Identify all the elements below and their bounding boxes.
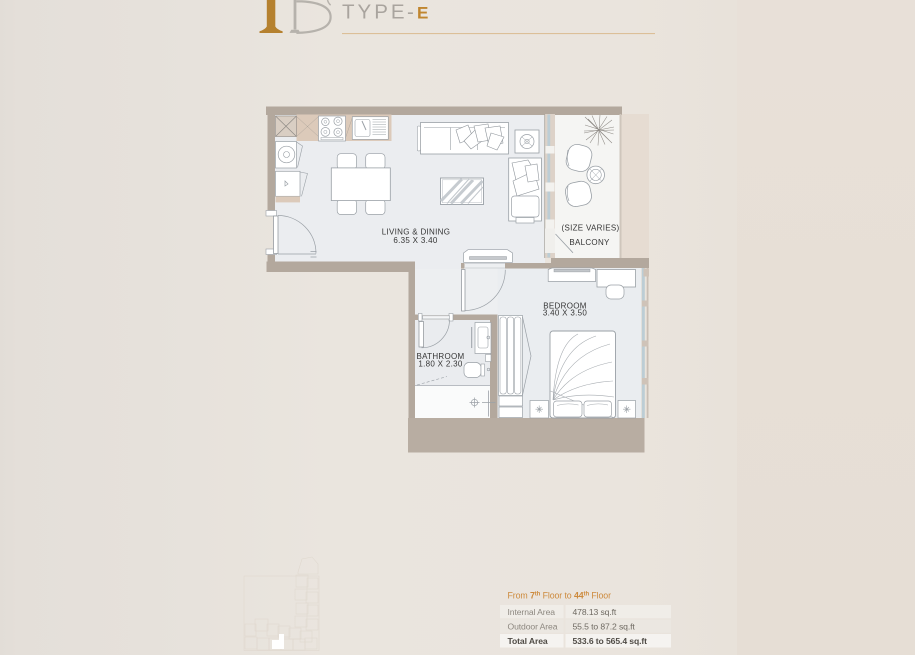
svg-text:6.35 X 3.40: 6.35 X 3.40 [393,236,437,245]
svg-text:55.5 to 87.2 sq.ft: 55.5 to 87.2 sq.ft [573,622,636,632]
svg-text:533.6 to 565.4 sq.ft: 533.6 to 565.4 sq.ft [573,636,648,646]
svg-text:Internal Area: Internal Area [508,607,556,617]
svg-text:(SIZE VARIES): (SIZE VARIES) [562,224,620,233]
svg-text:Total Area: Total Area [508,636,548,646]
svg-text:E: E [417,4,428,23]
svg-text:From 7th Floor to 44th Floor: From 7th Floor to 44th Floor [508,591,612,601]
svg-text:478.13 sq.ft: 478.13 sq.ft [573,607,617,617]
svg-text:TYPE: TYPE [342,1,408,24]
svg-text:1.80 X 2.30: 1.80 X 2.30 [418,360,462,369]
svg-text:3.40 X 3.50: 3.40 X 3.50 [543,309,587,318]
svg-text:Outdoor Area: Outdoor Area [508,622,558,632]
svg-text:-: - [407,1,414,24]
svg-text:BALCONY: BALCONY [569,238,610,247]
